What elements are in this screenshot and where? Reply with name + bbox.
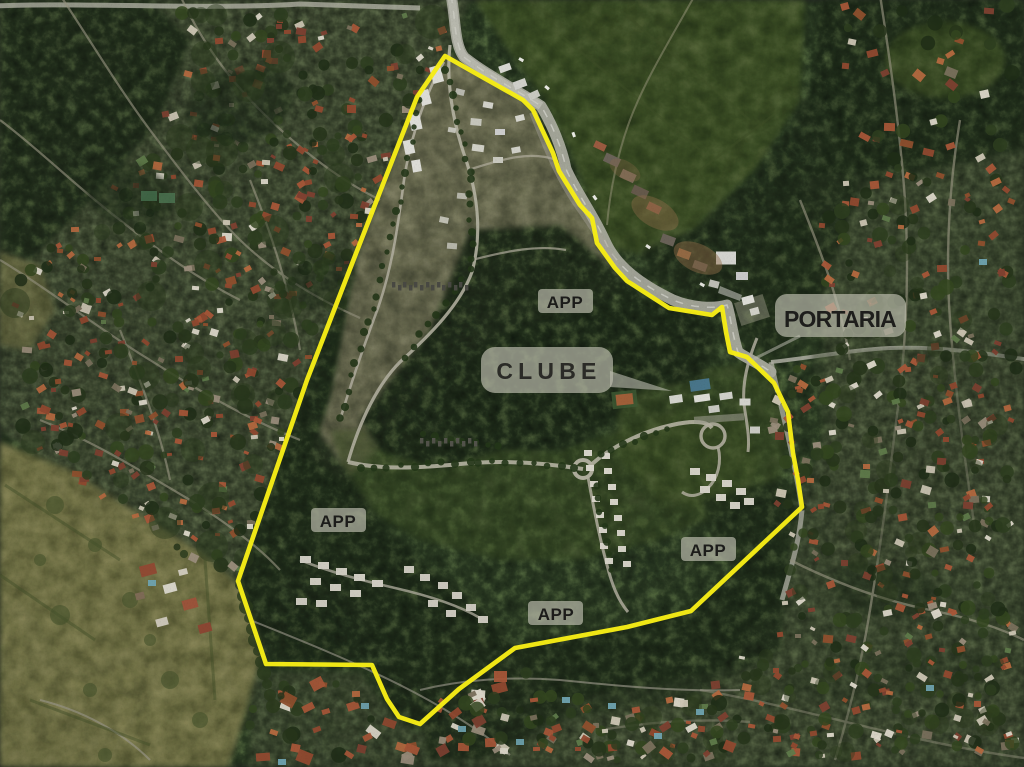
svg-text:CLUBE: CLUBE — [496, 358, 601, 384]
svg-text:APP: APP — [320, 512, 356, 531]
svg-text:PORTARIA: PORTARIA — [784, 306, 896, 332]
svg-text:APP: APP — [547, 293, 583, 312]
svg-text:APP: APP — [690, 541, 726, 560]
svg-text:APP: APP — [538, 605, 574, 624]
